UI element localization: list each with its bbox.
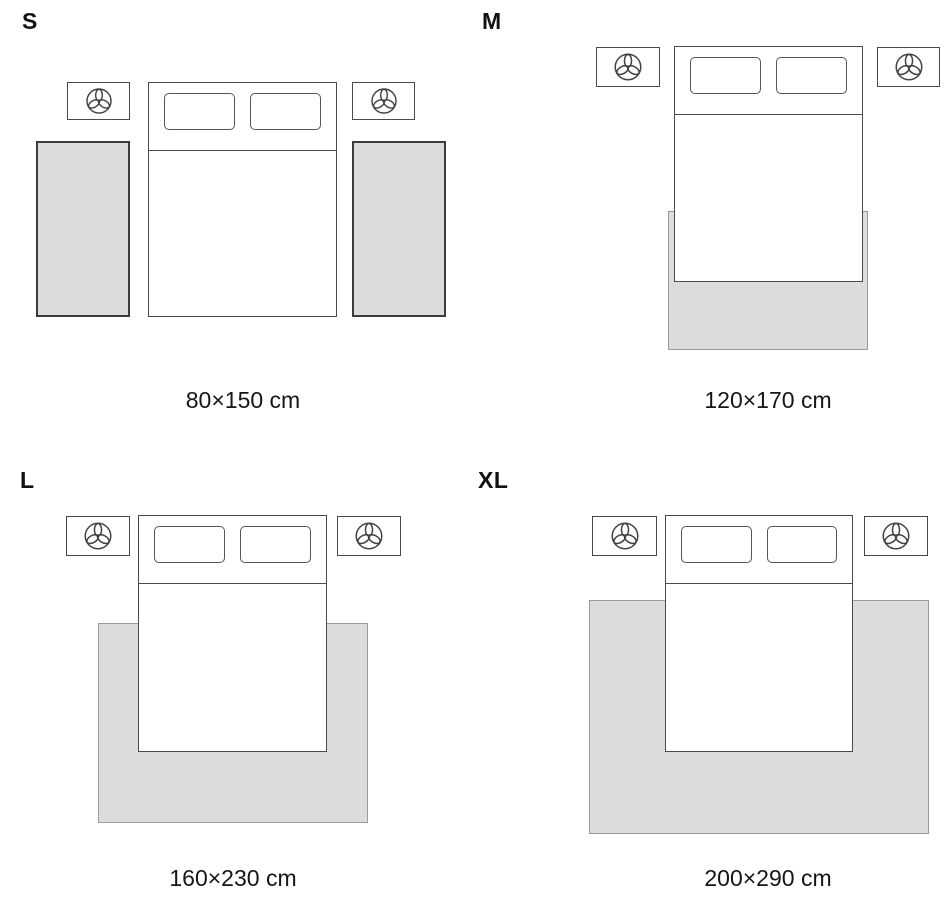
bed-headboard xyxy=(675,47,862,115)
bedside-runner-rug-right xyxy=(352,141,446,317)
pillow-right xyxy=(240,526,311,563)
size-label-xl: XL xyxy=(478,467,508,494)
pillow-left xyxy=(164,93,235,130)
rug-dimensions-label-xl: 200×290 cm xyxy=(598,865,938,892)
nightstand-left xyxy=(67,82,130,120)
nightstand-left xyxy=(596,47,660,87)
bedside-runner-rug-left xyxy=(36,141,130,317)
size-label-m: M xyxy=(482,8,502,35)
bed xyxy=(674,46,863,282)
rug-dimensions-label-s: 80×150 cm xyxy=(148,387,338,414)
size-label-l: L xyxy=(20,467,35,494)
pillow-right xyxy=(767,526,838,563)
plant-icon xyxy=(368,85,400,117)
plant-icon xyxy=(879,519,913,553)
size-label-s: S xyxy=(22,8,38,35)
plant-icon xyxy=(611,50,645,84)
pillow-right xyxy=(776,57,847,94)
pillow-left xyxy=(154,526,225,563)
bed xyxy=(148,82,337,317)
nightstand-left xyxy=(592,516,657,556)
nightstand-right xyxy=(337,516,401,556)
bed xyxy=(665,515,853,752)
bed-headboard xyxy=(666,516,852,584)
plant-icon xyxy=(608,519,642,553)
plant-icon xyxy=(352,519,386,553)
pillow-left xyxy=(681,526,752,563)
rug-dimensions-label-m: 120×170 cm xyxy=(668,387,868,414)
pillow-left xyxy=(690,57,761,94)
plant-icon xyxy=(81,519,115,553)
nightstand-left xyxy=(66,516,130,556)
nightstand-right xyxy=(877,47,940,87)
plant-icon xyxy=(892,50,926,84)
pillow-right xyxy=(250,93,321,130)
rug-dimensions-label-l: 160×230 cm xyxy=(98,865,368,892)
nightstand-right xyxy=(352,82,415,120)
nightstand-right xyxy=(864,516,928,556)
bed-headboard xyxy=(149,83,336,151)
plant-icon xyxy=(83,85,115,117)
bed xyxy=(138,515,327,752)
bed-headboard xyxy=(139,516,326,584)
rug-size-guide: S xyxy=(0,0,950,900)
